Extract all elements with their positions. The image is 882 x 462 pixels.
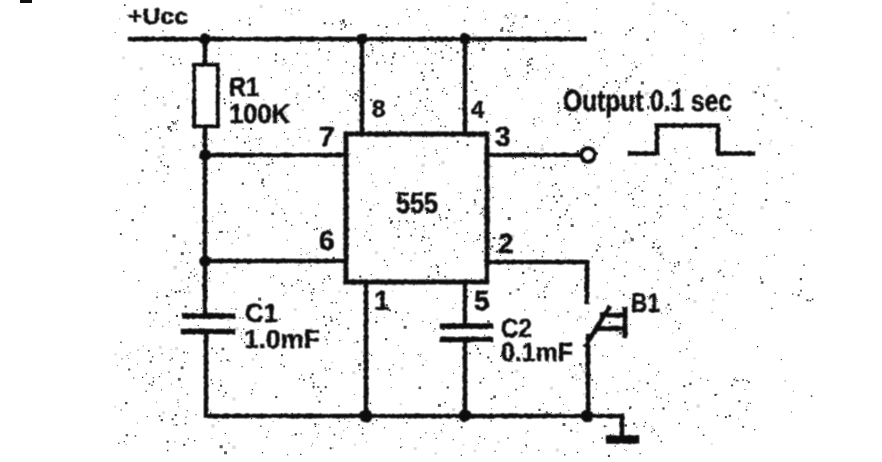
svg-text:100K: 100K [229,99,290,129]
svg-text:R1: R1 [229,72,259,102]
svg-text:1.0mF: 1.0mF [244,324,320,354]
svg-text:555: 555 [396,187,438,220]
svg-text:Output 0.1 sec: Output 0.1 sec [563,83,732,118]
svg-text:3: 3 [495,121,511,152]
svg-text:8: 8 [372,96,385,123]
svg-text:+Ucc: +Ucc [128,4,188,29]
svg-text:4: 4 [471,97,485,124]
svg-text:6: 6 [319,225,335,256]
svg-text:0.1mF: 0.1mF [501,337,573,367]
svg-text:7: 7 [319,121,335,152]
svg-text:B1: B1 [631,288,660,318]
svg-text:1: 1 [374,285,390,316]
svg-text:5: 5 [474,285,490,316]
svg-text:2: 2 [498,228,514,259]
